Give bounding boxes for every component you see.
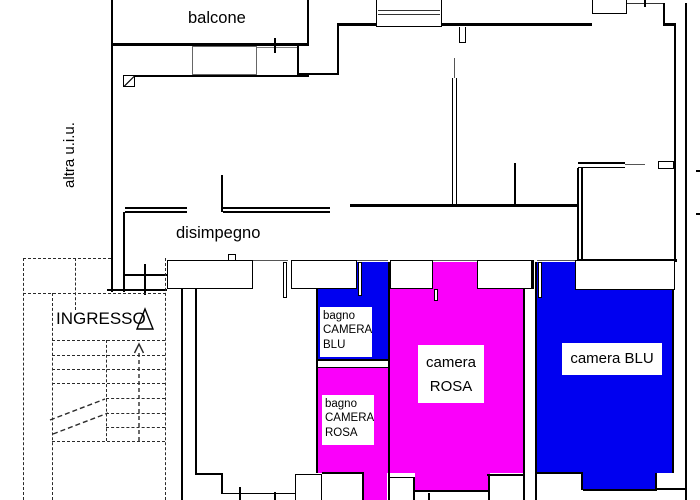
wall-inner-face-top: [123, 75, 309, 77]
label-line: camera: [418, 351, 484, 375]
wall-rosa-right-v: [488, 475, 490, 500]
wall-right-outer: [685, 3, 687, 500]
stair-diagonal-2: [53, 413, 108, 434]
tick-top-right: [644, 0, 646, 7]
stair-arrow-head: [135, 344, 144, 353]
wall-dis-right-h1: [578, 162, 625, 164]
wall-camera-blu-right: [672, 289, 674, 473]
wall-dis-right-h2: [578, 167, 625, 169]
stair-tread-6: [106, 413, 165, 414]
window-tick: [274, 38, 276, 53]
window-line-soggiorno: [223, 493, 296, 495]
wall-line-se: [657, 488, 687, 490]
window-line-balcone: [257, 47, 297, 48]
wall-stub-kitchen: [514, 163, 516, 205]
wall-dis-top-b2: [223, 211, 330, 213]
window-bay-bagno-rosa: [364, 473, 387, 500]
wall-rosa-blu-left: [523, 289, 525, 500]
terrace-rail-2: [378, 14, 440, 15]
wall-right-inner: [674, 25, 676, 261]
door-head-1: [253, 260, 288, 261]
wall-bagno-camera: [388, 262, 390, 500]
stair-diagonal-1: [50, 399, 105, 420]
wall-block-d: [477, 260, 532, 289]
label-bagno-camera-rosa: bagno CAMERA ROSA: [322, 395, 374, 445]
hatch-square: [123, 75, 135, 87]
room-camera-blu: [537, 289, 673, 473]
wall-divider-cap: [532, 260, 534, 289]
window-line-rosa: [415, 490, 490, 492]
partition-kitchen-b: [456, 78, 457, 205]
label-disimpegno: disimpegno: [176, 224, 260, 243]
stair-dash-top: [23, 258, 111, 259]
window-tick-s1: [239, 487, 241, 500]
bay-blu-left: [581, 473, 583, 490]
floor-line-blu: [537, 472, 583, 474]
wall-pillar-1: [295, 474, 322, 500]
stair-dash-v75: [75, 258, 76, 310]
wall-bagno-rosa-divider-2: [318, 367, 388, 369]
wall-step-h: [297, 73, 339, 75]
wall-dis-top-c: [350, 204, 578, 207]
terrace-rail-1: [378, 10, 440, 11]
label-line: bagno: [323, 309, 369, 323]
door-leaf-camera-blu: [538, 262, 542, 298]
wall-soggiorno-left-outer: [181, 289, 183, 500]
window-tick-rosa: [428, 493, 430, 500]
stair-tread-2: [52, 355, 165, 356]
wall-soggiorno-bagno: [316, 289, 318, 473]
wall-pin: [228, 254, 236, 261]
wall-bracket: [658, 161, 674, 169]
french-door-balcone: [192, 46, 257, 75]
entry-door-tick: [144, 264, 146, 295]
wall-block-a: [167, 260, 253, 289]
door-leaf-camera-rosa: [434, 289, 438, 301]
wall-dis-top-b1: [223, 207, 330, 209]
stair-tread-8: [52, 441, 165, 442]
wall-dis-top-a1: [125, 207, 187, 209]
label-line: ROSA: [325, 426, 371, 440]
entry-line-bottom: [107, 289, 167, 291]
wall-dis-right-v2: [581, 168, 583, 260]
door-head-4: [537, 260, 575, 261]
wall-dis-right-thin: [625, 164, 645, 165]
bay-rosa-left: [413, 477, 415, 500]
entry-line-top: [125, 274, 167, 276]
label-camera-rosa: camera ROSA: [418, 345, 484, 403]
wall-block-e: [575, 260, 675, 290]
door-head-2: [357, 260, 388, 261]
label-line: camera BLU: [570, 350, 653, 367]
wall-balcone-right: [307, 0, 309, 45]
window-line-blu: [583, 489, 657, 491]
label-camera-blu: camera BLU: [562, 343, 662, 375]
stair-dash-h293: [23, 293, 166, 294]
stair-dash-v106: [106, 340, 107, 441]
wall-left-inner: [123, 212, 125, 292]
door-leaf-bagno-blu: [358, 262, 362, 296]
wall-dis-right-v1: [577, 168, 579, 260]
door-head-3: [433, 260, 477, 261]
partition-kitchen-thin: [454, 58, 455, 78]
wall-rosa-blu-right: [535, 262, 537, 500]
wall-ne-v: [663, 3, 665, 25]
stair-tread-4: [52, 383, 165, 384]
door-leaf-soggiorno: [283, 262, 287, 298]
label-bagno-camera-blu: bagno CAMERA BLU: [320, 307, 372, 357]
door-gap-camera-blu: [537, 262, 575, 290]
wall-step-v: [297, 43, 299, 74]
window-bay-camera-blu: [583, 473, 657, 490]
label-line: bagno: [325, 397, 371, 411]
label-altra-uiu-text: altra u.i.u.: [61, 122, 78, 188]
wall-jog-v: [337, 25, 339, 75]
window-tick-s2: [274, 492, 276, 500]
flue-stub: [459, 27, 466, 43]
terrace-top-right: [592, 0, 627, 14]
wall-line-rosa-right: [487, 474, 523, 476]
floor-plan: balcone altra u.i.u. disimpegno INGRESSO…: [0, 0, 700, 500]
stair-tread-3: [52, 369, 165, 370]
label-line: ROSA: [418, 375, 484, 399]
stair-dash-right: [165, 258, 166, 500]
tick-right-edge-2: [696, 213, 700, 215]
stair-dash-v52: [52, 293, 53, 500]
label-altra-uiu: altra u.i.u.: [61, 105, 79, 205]
floor-line-bagno: [322, 472, 364, 474]
wall-dis-top-a2: [125, 211, 187, 213]
window-bay-camera-rosa: [415, 473, 490, 491]
tick-right-edge-1: [696, 170, 700, 172]
bay-bagno-left: [362, 473, 364, 500]
label-ingresso: INGRESSO: [56, 309, 146, 329]
label-balcone: balcone: [188, 9, 246, 28]
label-line: CAMERA: [325, 411, 371, 425]
wall-pillar-2: [389, 477, 415, 500]
wall-block-b: [291, 260, 357, 289]
stair-tread-1: [52, 340, 165, 341]
wall-block-c: [390, 260, 433, 289]
bay-left-v: [221, 475, 223, 494]
stair-tread-5: [106, 398, 165, 399]
partition-kitchen-a: [452, 78, 453, 205]
wall-bagno-rosa-divider-1: [318, 359, 388, 361]
label-line: BLU: [323, 338, 369, 352]
door-gap-camera-rosa: [433, 262, 477, 290]
stair-dash-left: [23, 258, 24, 500]
stair-tread-7: [106, 427, 165, 428]
floor-line-soggiorno: [195, 473, 223, 475]
wall-soggiorno-left-inner: [195, 289, 197, 474]
label-line: CAMERA: [323, 323, 369, 337]
